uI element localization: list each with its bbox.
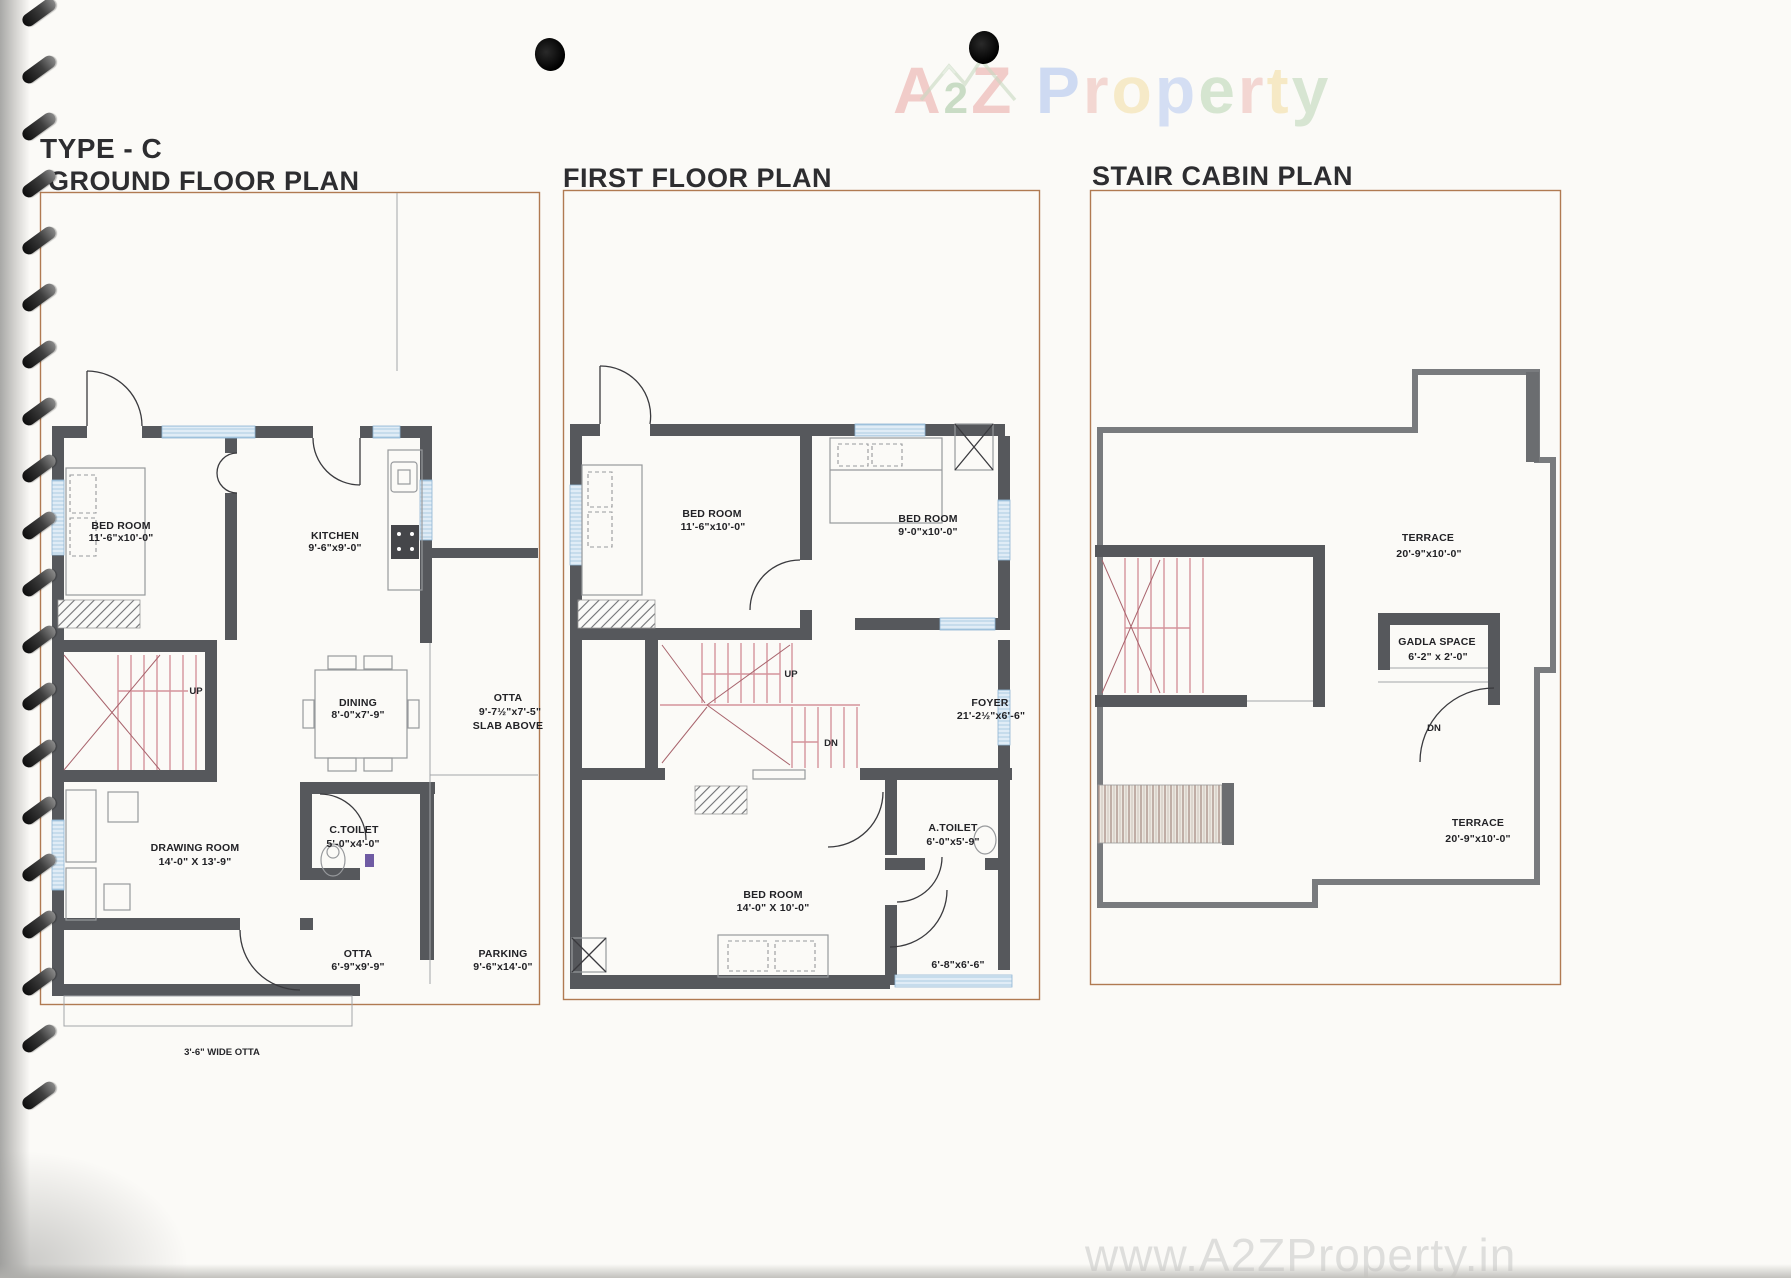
stair-up-label: UP bbox=[189, 686, 203, 697]
spiral-loop bbox=[20, 794, 58, 827]
spiral-loop bbox=[20, 737, 58, 770]
room-size: 9'-6"x14'-0" bbox=[473, 961, 532, 973]
room-size: 9'-0"x10'-0" bbox=[898, 526, 957, 538]
spiral-loop bbox=[20, 908, 58, 941]
pergola-wall bbox=[1222, 783, 1234, 845]
page-bottom-shadow bbox=[0, 1264, 1791, 1278]
room-label: KITCHEN bbox=[311, 530, 359, 542]
scanned-floor-plan-page: BED ROOM 11'-6"x10'-0" KITCHEN 9'-6"x9'-… bbox=[0, 0, 1791, 1278]
ground-floor-plan: BED ROOM 11'-6"x10'-0" KITCHEN 9'-6"x9'-… bbox=[41, 193, 544, 1059]
spiral-loop bbox=[20, 281, 58, 314]
corner-smudge bbox=[0, 1150, 190, 1278]
spiral-loop bbox=[20, 0, 58, 29]
room-label: GADLA SPACE bbox=[1398, 636, 1475, 648]
pergola-hatch bbox=[1098, 785, 1222, 843]
stair-dn-label: DN bbox=[1427, 723, 1441, 734]
spiral-loop bbox=[20, 1022, 58, 1055]
room-size: 6'-2" x 2'-0" bbox=[1408, 651, 1468, 663]
stair-up-label: UP bbox=[784, 669, 798, 680]
spiral-loop bbox=[20, 1079, 58, 1112]
brand-letter: o bbox=[1112, 53, 1155, 127]
room-label: TERRACE bbox=[1402, 532, 1454, 544]
spiral-loop bbox=[20, 680, 58, 713]
stair-panel-border bbox=[1091, 191, 1561, 985]
room-label: BED ROOM bbox=[682, 508, 741, 520]
stair-dn-label: DN bbox=[824, 738, 838, 749]
room-size: 6'-0"x5'-9" bbox=[926, 836, 979, 848]
brand-letter: p bbox=[1155, 53, 1198, 127]
mountains-icon bbox=[915, 54, 1025, 104]
room-label: BED ROOM bbox=[743, 889, 802, 901]
brand-letter: t bbox=[1267, 53, 1292, 127]
room-label: DRAWING ROOM bbox=[151, 842, 240, 854]
ground-panel-border bbox=[41, 193, 540, 1005]
room-label: C.TOILET bbox=[329, 824, 379, 836]
brand-letter: y bbox=[1292, 53, 1332, 127]
room-label: FOYER bbox=[971, 697, 1008, 709]
spiral-loop bbox=[20, 167, 58, 200]
room-size: 11'-6"x10'-0" bbox=[681, 521, 746, 533]
room-size: 11'-6"x10'-0" bbox=[89, 532, 154, 544]
room-label: PARKING bbox=[478, 948, 527, 960]
room-label: BED ROOM bbox=[898, 513, 957, 525]
spiral-loop bbox=[20, 965, 58, 998]
first-room-labels: BED ROOM 11'-6"x10'-0" BED ROOM 9'-0"x10… bbox=[681, 508, 1026, 971]
spiral-loop bbox=[20, 509, 58, 542]
spiral-loop bbox=[20, 338, 58, 371]
brand-letter: r bbox=[1238, 53, 1267, 127]
stair-cabin-stairs bbox=[1102, 558, 1203, 693]
room-size: 9'-6"x9'-0" bbox=[308, 542, 361, 554]
first-floor-plan: BED ROOM 11'-6"x10'-0" BED ROOM 9'-0"x10… bbox=[564, 191, 1040, 1000]
ground-floor-title: GROUND FLOOR PLAN bbox=[48, 166, 360, 197]
room-size: 9'-7½"x7'-5" bbox=[479, 706, 541, 718]
spiral-loop bbox=[20, 224, 58, 257]
spiral-loop bbox=[20, 566, 58, 599]
room-size: 5'-0"x4'-0" bbox=[326, 838, 379, 850]
brand-letter: e bbox=[1198, 53, 1238, 127]
brand-letter: P bbox=[1036, 53, 1083, 127]
room-label: DINING bbox=[339, 697, 377, 709]
stair-cabin-lines bbox=[1247, 668, 1488, 701]
room-size: 21'-2½"x6'-6" bbox=[957, 710, 1025, 722]
room-size: 14'-0" X 10'-0" bbox=[737, 902, 810, 914]
room-label: BED ROOM bbox=[91, 520, 150, 532]
first-stairs bbox=[660, 643, 860, 768]
spiral-loop bbox=[20, 110, 58, 143]
ground-doors bbox=[87, 371, 366, 990]
room-size: 20'-9"x10'-0" bbox=[1445, 833, 1510, 845]
wide-otta-annotation: 3'-6" WIDE OTTA bbox=[184, 1047, 260, 1058]
room-size: 14'-0" X 13'-9" bbox=[159, 856, 232, 868]
room-label: TERRACE bbox=[1452, 817, 1504, 829]
room-size: 8'-0"x7'-9" bbox=[331, 709, 384, 721]
spiral-loop bbox=[20, 53, 58, 86]
spiral-loop bbox=[20, 851, 58, 884]
stair-cabin-plan: TERRACE 20'-9"x10'-0" GADLA SPACE 6'-2" … bbox=[1091, 191, 1561, 985]
spiral-loop bbox=[20, 623, 58, 656]
room-label: OTTA bbox=[494, 692, 523, 704]
first-floor-title: FIRST FLOOR PLAN bbox=[563, 163, 832, 194]
ground-hatch-strip bbox=[58, 600, 140, 628]
brand-letter: r bbox=[1083, 53, 1112, 127]
brand-watermark: A2Z Property bbox=[893, 52, 1331, 128]
room-note: SLAB ABOVE bbox=[473, 720, 543, 732]
room-label: A.TOILET bbox=[928, 822, 978, 834]
room-size: 20'-9"x10'-0" bbox=[1396, 548, 1461, 560]
room-size: 6'-8"x6'-6" bbox=[931, 959, 984, 971]
spiral-binding bbox=[0, 0, 70, 1278]
spiral-loop bbox=[20, 395, 58, 428]
parapet-wall bbox=[1526, 372, 1539, 462]
room-label: OTTA bbox=[344, 948, 373, 960]
room-size: 6'-9"x9'-9" bbox=[331, 961, 384, 973]
spiral-loop bbox=[20, 452, 58, 485]
ground-stairs bbox=[64, 655, 196, 770]
ground-windows bbox=[52, 426, 432, 890]
stair-cabin-title: STAIR CABIN PLAN bbox=[1092, 161, 1353, 192]
